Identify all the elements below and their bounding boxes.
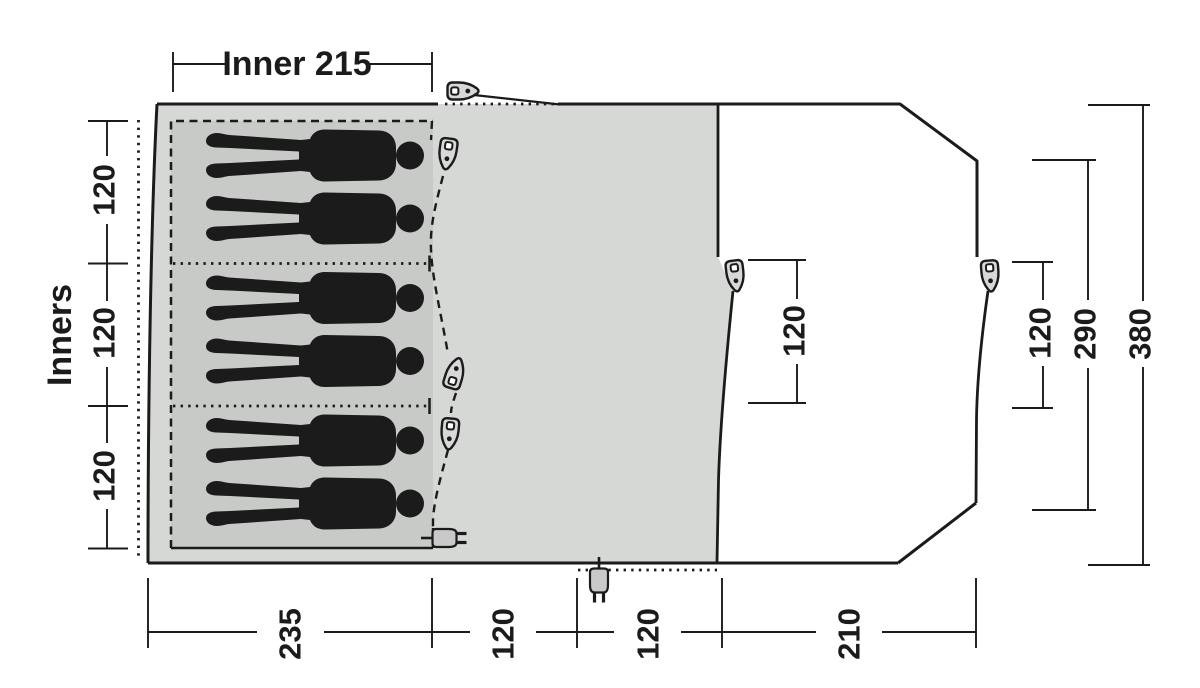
dim-label: 120 [631,608,666,660]
dim-door-offset: 120 [748,260,812,403]
dim-left-segments: 120 120 120 [87,121,129,549]
dim-bottom-segments: 235 120 120 210 [148,578,976,660]
dim-inner-width: Inner 215 [173,45,432,92]
dim-label: 120 [87,164,122,216]
dim-label: 120 [87,450,122,502]
floorplan-canvas: Inner 215 Inners 120 120 120 120 120 290… [0,0,1200,688]
dim-right-depths: 120 290 380 [1012,105,1158,565]
peg-icon [981,260,1000,292]
dim-label: 120 [486,608,521,660]
inner-width-label: Inner 215 [222,45,371,83]
dim-label: 210 [832,608,867,660]
dim-label: 380 [1123,308,1158,360]
inners-label: Inners [41,284,79,386]
tent-floorplan-diagram: Inner 215 Inners 120 120 120 120 120 290… [0,0,1200,688]
dim-label: 290 [1068,308,1103,360]
peg-icon [448,83,479,100]
dim-label: 235 [273,608,308,660]
dim-label: 120 [1023,307,1058,359]
dim-label: 120 [87,307,122,359]
dim-label: 120 [777,305,812,357]
guy-line [474,95,560,105]
